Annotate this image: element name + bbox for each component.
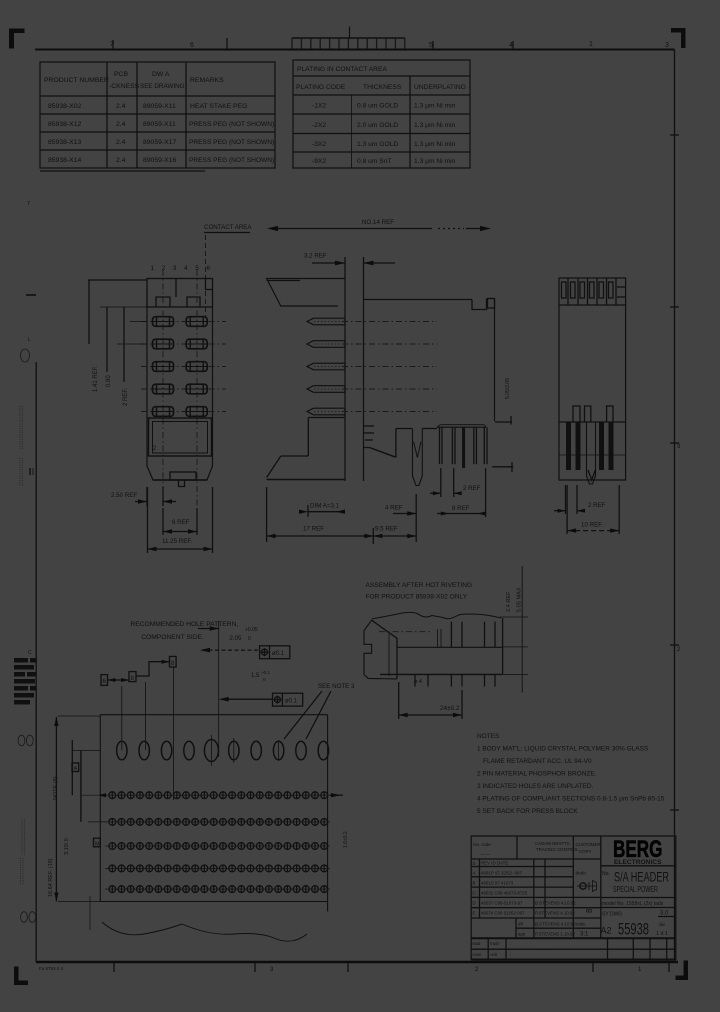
svg-text:dft: dft	[518, 922, 524, 927]
svg-text:COPY: COPY	[579, 849, 592, 854]
svg-text:SPECIAL POWER: SPECIAL POWER	[613, 884, 658, 894]
svg-text:4: 4	[184, 265, 188, 272]
svg-text:3:1: 3:1	[580, 932, 589, 938]
svg-text:drafn: drafn	[576, 871, 587, 876]
svg-text:scale: scale	[576, 922, 587, 927]
svg-text:3.0: 3.0	[660, 911, 669, 917]
svg-text:cone: cone	[472, 952, 482, 957]
svg-text:11.25 REF.: 11.25 REF.	[162, 538, 192, 545]
svg-text:unit: unit	[490, 952, 498, 957]
svg-text:1 d 1: 1 d 1	[656, 931, 668, 937]
svg-text:0: 0	[248, 636, 251, 642]
svg-text:-1X2: -1X2	[312, 103, 326, 110]
svg-text:16.64 REF. (19): 16.64 REF. (19)	[48, 858, 54, 897]
svg-text:4 REF: 4 REF	[385, 505, 403, 512]
svg-text:3: 3	[665, 42, 669, 49]
svg-text:ø.4: ø.4	[414, 679, 422, 685]
svg-text:10 REF.: 10 REF.	[581, 522, 603, 529]
svg-text:2.50 REF: 2.50 REF	[111, 492, 137, 499]
svg-text:M: M	[95, 842, 100, 848]
svg-text:-3X2: -3X2	[312, 141, 326, 148]
svg-text:17 REF: 17 REF	[303, 526, 324, 533]
svg-text:1 BODY MAT'L: LIQUID CRYSTAL P: 1 BODY MAT'L: LIQUID CRYSTAL POLYMER 30%…	[477, 746, 649, 753]
svg-text:+0.1: +0.1	[261, 670, 271, 675]
svg-text:PRODUCT NUMBER: PRODUCT NUMBER	[44, 77, 109, 84]
svg-text:4: 4	[509, 42, 513, 49]
svg-text:2.4 REF: 2.4 REF	[506, 591, 512, 612]
svg-text:3.10/.5: 3.10/.5	[64, 838, 70, 855]
svg-text:5 SET BACK FOR PRESS BLOCK: 5 SET BACK FOR PRESS BLOCK	[477, 808, 578, 815]
svg-text:PLATING CODE: PLATING CODE	[296, 84, 346, 91]
svg-text:2 PIN MATERIAL PHOSPHOR BRONZE: 2 PIN MATERIAL PHOSPHOR BRONZE.	[477, 771, 597, 778]
svg-text:6: 6	[207, 265, 211, 272]
svg-text:-CKNESS: -CKNESS	[109, 83, 140, 90]
svg-text::: :	[510, 952, 511, 957]
svg-text:dw: dw	[659, 922, 666, 927]
svg-text:1.3 μm Ni min: 1.3 μm Ni min	[414, 141, 456, 148]
svg-text:E: E	[473, 911, 476, 916]
svg-text:REV ID DATE: REV ID DATE	[481, 861, 508, 866]
svg-text:PRESS PEG (NOT SHOWN): PRESS PEG (NOT SHOWN)	[189, 139, 274, 146]
svg-text:3.2 REF: 3.2 REF	[304, 253, 327, 260]
svg-text:1: 1	[589, 41, 593, 48]
svg-text:∆: ∆	[473, 861, 476, 866]
svg-text:7: 7	[110, 41, 114, 48]
svg-text:FLAME RETARDANT ACC. UL 94-V0: FLAME RETARDANT ACC. UL 94-V0	[483, 758, 592, 765]
svg-text:B: B	[473, 881, 476, 886]
svg-text:·: ·	[612, 947, 613, 952]
svg-text:DW A: DW A	[152, 71, 170, 78]
svg-text:CADAM DRAFTS: CADAM DRAFTS	[535, 841, 570, 846]
svg-text:NOTE (9): NOTE (9)	[53, 776, 59, 800]
svg-text:PRESS PEG (NOT SHOWN): PRESS PEG (NOT SHOWN)	[189, 121, 274, 128]
svg-text:SEE NOTE 3: SEE NOTE 3	[318, 683, 355, 690]
svg-text:8 REF: 8 REF	[452, 505, 470, 512]
svg-text:24±0.2: 24±0.2	[440, 705, 460, 712]
svg-text:1: 1	[151, 265, 155, 272]
svg-text:S/A HEADER: S/A HEADER	[614, 869, 669, 885]
svg-text:PRESS PEG (NOT SHOWN): PRESS PEG (NOT SHOWN)	[189, 157, 274, 164]
svg-text:app: app	[518, 932, 526, 937]
svg-text:C: C	[473, 891, 476, 896]
svg-text:1.41 REF.: 1.41 REF.	[93, 365, 99, 392]
svg-text:A: A	[473, 871, 476, 876]
svg-text:8: 8	[585, 908, 594, 913]
svg-text:-2X2: -2X2	[312, 122, 326, 129]
svg-text:PCB: PCB	[114, 71, 128, 78]
svg-text:0.90: 0.90	[106, 375, 112, 387]
svg-text:HEAT STAKE PEG: HEAT STAKE PEG	[190, 103, 247, 110]
svg-text:rev. code: rev. code	[473, 842, 491, 847]
svg-text:2.0 um GOLD: 2.0 um GOLD	[357, 122, 398, 129]
svg-text:A2: A2	[601, 926, 612, 936]
svg-text:89059-X11: 89059-X11	[143, 121, 176, 128]
svg-text:Fa 5753-2 4: Fa 5753-2 4	[39, 966, 64, 971]
svg-text:9.5 REF: 9.5 REF	[375, 526, 398, 533]
svg-text:2 REF: 2 REF	[588, 502, 606, 509]
svg-text:+0.05: +0.05	[245, 627, 258, 633]
svg-text:SEE DRAWING: SEE DRAWING	[140, 83, 185, 90]
svg-text:85938-X13: 85938-X13	[48, 139, 81, 146]
svg-text:1.3 um GOLD: 1.3 um GOLD	[357, 141, 398, 148]
svg-text:3: 3	[173, 265, 177, 272]
svg-text:1.6±0.2: 1.6±0.2	[343, 831, 349, 848]
svg-text:89059-X16: 89059-X16	[143, 157, 176, 164]
svg-text:46074 C08 51052 097: 46074 C08 51052 097	[481, 911, 525, 916]
svg-text:CUSTOMER: CUSTOMER	[576, 842, 601, 847]
svg-text:stad: stad	[472, 941, 481, 946]
svg-text:2: 2	[162, 265, 166, 272]
svg-text:55938: 55938	[618, 920, 649, 939]
svg-text:2.4: 2.4	[116, 121, 126, 128]
svg-text:·: ·	[656, 947, 657, 952]
svg-text:85938-X02: 85938-X02	[48, 103, 81, 110]
svg-text:C: C	[28, 650, 32, 656]
svg-text:No.: No.	[602, 871, 610, 877]
svg-text:A: A	[74, 766, 78, 772]
svg-text:B.STEVENS 4.10.92: B.STEVENS 4.10.92	[535, 922, 576, 927]
svg-text:0.8 um SnT: 0.8 um SnT	[357, 158, 392, 165]
svg-text:5: 5	[429, 42, 433, 49]
svg-text:89059-X17: 89059-X17	[143, 139, 176, 146]
svg-text:D: D	[473, 901, 476, 906]
svg-text:6 REF: 6 REF	[172, 519, 190, 526]
svg-text:3 INDICATED HOLES ARE UNPLATED: 3 INDICATED HOLES ARE UNPLATED.	[477, 783, 594, 790]
svg-text:1.3 μm Ni min: 1.3 μm Ni min	[414, 122, 456, 129]
svg-text:6: 6	[190, 42, 194, 49]
svg-text:46032 C08 46073-8725: 46032 C08 46073-8725	[481, 891, 528, 896]
svg-text:46037 C08-51073-97: 46037 C08-51073-97	[481, 901, 523, 906]
svg-text:ø0.1: ø0.1	[272, 651, 285, 657]
svg-text:5.05/3.05: 5.05/3.05	[505, 378, 511, 399]
svg-text:model No. 1559xL (2x) tads: model No. 1559xL (2x) tads	[602, 901, 664, 907]
svg-text:-9X2: -9X2	[312, 158, 326, 165]
svg-text:7: 7	[27, 201, 30, 207]
svg-text:UNDERPLATING: UNDERPLATING	[414, 84, 466, 91]
svg-text:— —: — —	[480, 852, 491, 857]
svg-text::: :	[510, 941, 511, 946]
svg-text:COMPONENT SIDE.: COMPONENT SIDE.	[141, 634, 204, 641]
svg-text:NOTES: NOTES	[477, 733, 500, 740]
svg-text:TRACING CONTROL: TRACING CONTROL	[536, 847, 579, 852]
svg-text:THICKNESS: THICKNESS	[363, 84, 402, 91]
svg-text:REMARKS: REMARKS	[190, 77, 224, 84]
svg-text:0.8 um GOLD: 0.8 um GOLD	[357, 103, 398, 110]
svg-text:2.4: 2.4	[116, 157, 126, 164]
svg-text:2 REF: 2 REF	[463, 485, 481, 492]
svg-text:85938-X14: 85938-X14	[48, 157, 81, 164]
svg-text:4 PLATING OF COMPLIANT SECTION: 4 PLATING OF COMPLIANT SECTIONS 0.8-1.5 …	[477, 796, 665, 803]
svg-text:4601S 97 41073: 4601S 97 41073	[481, 881, 514, 886]
svg-text:1.3 μm Ni min: 1.3 μm Ni min	[414, 103, 456, 110]
svg-text:ELECTRONICS: ELECTRONICS	[614, 860, 662, 866]
svg-text:P.STEVENS 4.10.92: P.STEVENS 4.10.92	[535, 911, 576, 916]
svg-text:RECOMMENDED HOLE PATTERN,: RECOMMENDED HOLE PATTERN,	[130, 621, 238, 628]
svg-text:2.4: 2.4	[116, 139, 126, 146]
svg-text:L: L	[28, 337, 31, 343]
svg-text:B.STEVENS 4.10.92: B.STEVENS 4.10.92	[535, 901, 576, 906]
svg-text:85938-X12: 85938-X12	[48, 121, 81, 128]
svg-text:ASSEMBLY AFTER HOT RIVETING: ASSEMBLY AFTER HOT RIVETING	[366, 582, 473, 589]
svg-text:1.3 μm Ni min: 1.3 μm Ni min	[414, 158, 456, 165]
svg-text:4601P 97 32/52 -097: 4601P 97 32/52 -097	[481, 871, 522, 876]
svg-text:ø0.1: ø0.1	[285, 699, 298, 705]
svg-text:2.05: 2.05	[229, 635, 242, 642]
svg-text:2 REF.: 2 REF.	[123, 388, 129, 406]
svg-text:FOR PRODUCT 85938-X02 ONLY: FOR PRODUCT 85938-X02 ONLY	[366, 594, 468, 601]
svg-text:PLATING IN CONTACT AREA: PLATING IN CONTACT AREA	[297, 66, 387, 73]
svg-text:BERG: BERG	[613, 836, 663, 863]
svg-text:·: ·	[640, 947, 641, 952]
svg-text:- — - -: - — - -	[540, 947, 552, 952]
svg-text:0: 0	[263, 677, 266, 682]
svg-text:tradn: tradn	[490, 941, 500, 946]
svg-text:NO.14 REF: NO.14 REF	[362, 219, 394, 226]
svg-text:1.5: 1.5	[251, 673, 260, 679]
svg-text:89059-X11: 89059-X11	[143, 103, 176, 110]
svg-text:5.05 MAX: 5.05 MAX	[517, 587, 523, 612]
svg-text:CONTACT AREA: CONTACT AREA	[204, 224, 252, 231]
svg-text:SY DWG: SY DWG	[602, 912, 622, 918]
svg-text:DIM A=3.1: DIM A=3.1	[310, 503, 340, 510]
svg-text:2.4: 2.4	[116, 103, 126, 110]
svg-text:P.STEVENS 1.10.92: P.STEVENS 1.10.92	[535, 932, 576, 937]
